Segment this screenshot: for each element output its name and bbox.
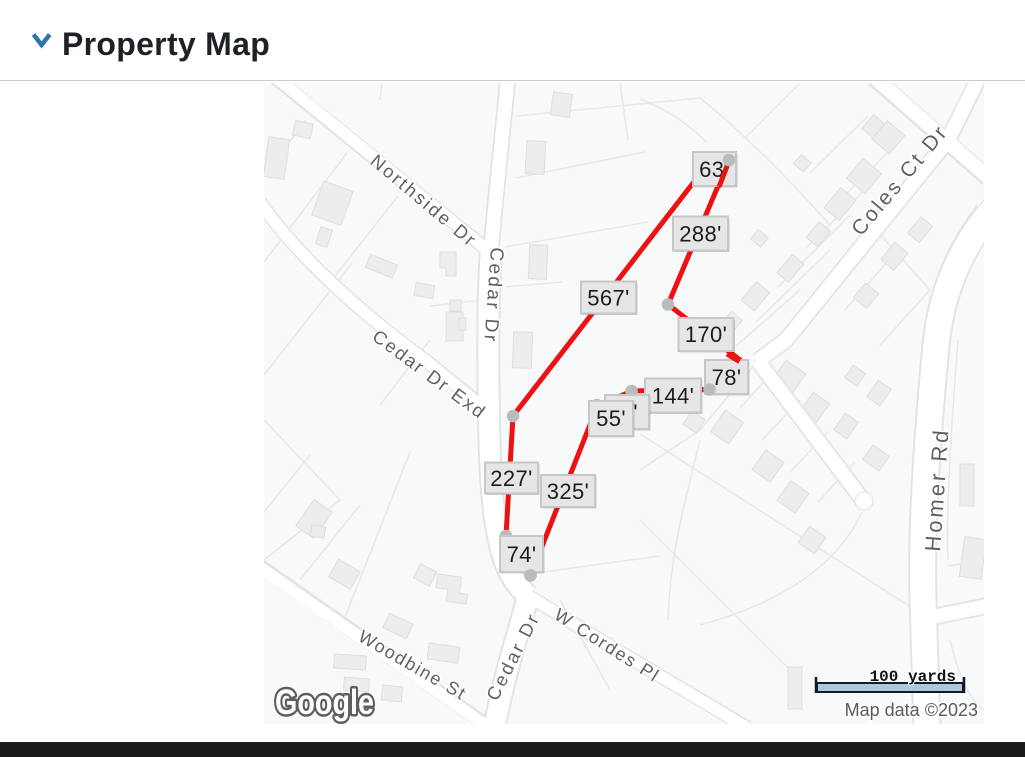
svg-text:170': 170': [685, 322, 728, 347]
svg-text:325': 325': [547, 479, 590, 504]
svg-text:288': 288': [679, 222, 722, 247]
svg-text:Google: Google: [275, 683, 374, 722]
svg-text:144': 144': [652, 384, 695, 409]
svg-text:227': 227': [490, 466, 533, 491]
svg-text:Map data ©2023: Map data ©2023: [845, 700, 978, 720]
svg-text:100 yards: 100 yards: [870, 668, 956, 686]
svg-text:567': 567': [587, 286, 630, 311]
svg-text:78': 78': [712, 365, 742, 390]
svg-text:55': 55': [596, 406, 626, 431]
svg-text:74': 74': [507, 542, 537, 567]
